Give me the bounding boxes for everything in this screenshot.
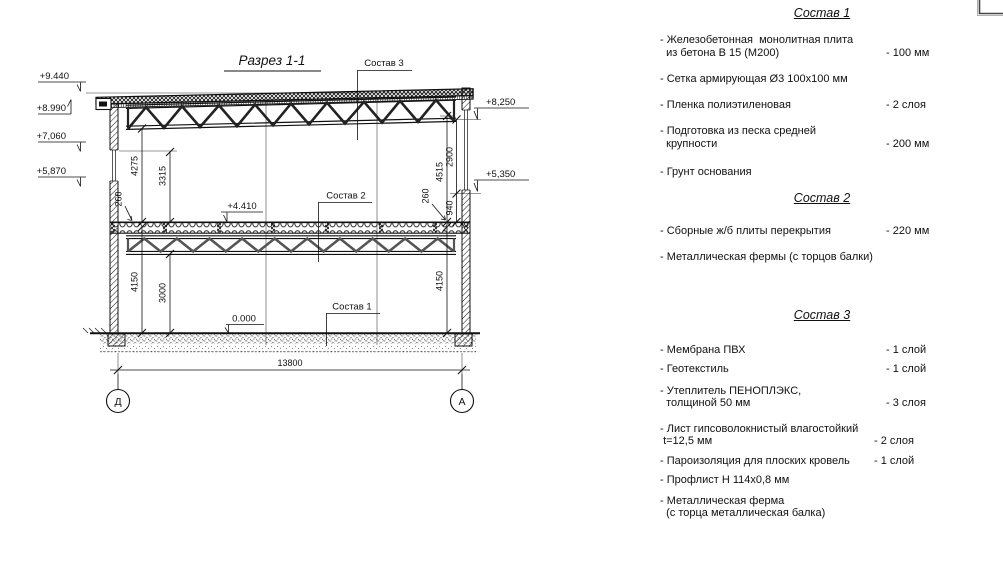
dim-940: 940 bbox=[445, 200, 455, 215]
item-name: - Утеплитель ПЕНОПЛЭКС, толщиной 50 мм bbox=[660, 385, 882, 410]
item-name: - Металлическая ферма (с торца металличе… bbox=[660, 495, 882, 520]
callout-sostav1-label: Состав 1 bbox=[332, 302, 371, 313]
drawing-title: Разрез 1-1 bbox=[224, 53, 321, 71]
down-arrow-icon bbox=[77, 83, 81, 92]
item-value: - 3 слоя bbox=[886, 397, 926, 410]
list-item: - Мембрана ПВХ - 1 слой bbox=[660, 344, 970, 357]
floor-truss-diagonals bbox=[128, 239, 454, 252]
up-arrow-icon bbox=[68, 100, 72, 115]
item-value: - 1 слой bbox=[886, 363, 926, 376]
item-name: - Сетка армирующая Ø3 100х100 мм bbox=[660, 73, 882, 86]
section-title-sostav2: Состав 2 bbox=[660, 191, 970, 205]
roof-slab bbox=[96, 89, 473, 110]
sand-bed-band bbox=[100, 344, 476, 352]
down-arrow-icon bbox=[77, 143, 81, 152]
elevation-mark-0000: 0.000 bbox=[225, 314, 264, 334]
list-item: - Сборные ж/б плиты перекрытия - 220 мм bbox=[660, 225, 970, 238]
right-wall bbox=[461, 88, 471, 333]
list-item: - Подготовка из песка средней крупности … bbox=[660, 125, 970, 150]
drawing-title-text: Разрез 1-1 bbox=[239, 53, 306, 68]
section-drawing: Разрез 1-1 bbox=[0, 0, 660, 584]
left-wall bbox=[109, 104, 119, 333]
list-item: - Лист гипсоволокнистый влагостойкий t=1… bbox=[660, 423, 970, 448]
list-item: - Пароизоляция для плоских кровель - 1 с… bbox=[660, 455, 970, 468]
elevation-7060-label: +7,060 bbox=[37, 131, 66, 142]
dim-4150-left: 4150 bbox=[130, 272, 140, 292]
item-name: - Пленка полиэтиленовая bbox=[660, 99, 882, 112]
dimension-left-3000: 3000 bbox=[158, 250, 175, 337]
foundation-block-right bbox=[455, 334, 472, 346]
item-value: - 200 мм bbox=[886, 138, 929, 151]
item-name: - Металлическая фермы (с торцов балки) bbox=[660, 251, 900, 264]
elevation-8990-label: +8.990 bbox=[37, 103, 66, 114]
axis-bubble-left: Д bbox=[107, 374, 130, 413]
elevation-8250-label: +8,250 bbox=[486, 97, 515, 108]
dim-4150-right: 4150 bbox=[435, 271, 445, 291]
elevation-0000-label: 0.000 bbox=[232, 314, 256, 325]
list-item: - Грунт основания bbox=[660, 166, 970, 179]
elevation-5350-label: +5,350 bbox=[486, 169, 515, 180]
item-value: - 1 слой bbox=[874, 455, 914, 468]
list-item: - Сетка армирующая Ø3 100х100 мм bbox=[660, 73, 970, 86]
item-name: - Мембрана ПВХ bbox=[660, 344, 882, 357]
down-arrow-icon bbox=[474, 109, 478, 120]
page: { "drawing": { "title": "Разрез 1-1", "c… bbox=[0, 0, 1003, 584]
axis-letter-a: А bbox=[458, 396, 465, 408]
slab-concrete-band bbox=[100, 334, 476, 344]
floor-truss bbox=[126, 236, 456, 255]
roof-truss-bottom-chord bbox=[126, 118, 456, 129]
list-item: - Металлическая фермы (с торцов балки) bbox=[660, 251, 970, 264]
intermediate-floor bbox=[110, 222, 470, 233]
dim-3000: 3000 bbox=[158, 283, 168, 303]
item-value: - 220 мм bbox=[886, 225, 929, 238]
item-name: - Лист гипсоволокнистый влагостойкий t=1… bbox=[660, 423, 872, 448]
item-value: - 2 слоя bbox=[886, 99, 926, 112]
down-arrow-icon bbox=[224, 213, 228, 223]
callout-sostav3-label: Состав 3 bbox=[364, 58, 403, 69]
elevation-5870-label: +5,870 bbox=[37, 166, 66, 177]
right-window-opening bbox=[461, 110, 471, 190]
dimension-span-13800: 13800 bbox=[110, 358, 470, 374]
elevation-mark-5870: +5,870 bbox=[37, 166, 86, 187]
list-item: - Профлист Н 114х0,8 мм bbox=[660, 474, 970, 487]
dim-4515: 4515 bbox=[435, 162, 445, 182]
list-item: - Геотекстиль - 1 слой bbox=[660, 363, 970, 376]
dim-260-right: 260 bbox=[421, 188, 431, 203]
item-value: - 1 слой bbox=[886, 344, 926, 357]
list-item: - Утеплитель ПЕНОПЛЭКС, толщиной 50 мм -… bbox=[660, 385, 970, 410]
list-item: - Железобетонная монолитная плита из бет… bbox=[660, 34, 970, 59]
section-title-sostav3: Состав 3 bbox=[660, 308, 970, 322]
axis-letter-d: Д bbox=[114, 396, 121, 408]
elevation-4410-label: +4.410 bbox=[227, 201, 256, 212]
elevation-9440-label: +9.440 bbox=[40, 71, 69, 82]
dim-260-left: 260 bbox=[114, 191, 124, 206]
elevation-mark-5350: +5,350 bbox=[474, 169, 529, 192]
list-item: - Пленка полиэтиленовая - 2 слоя bbox=[660, 99, 970, 112]
dim-13800: 13800 bbox=[277, 358, 302, 368]
ground-slab bbox=[83, 328, 480, 352]
section-title-sostav1: Состав 1 bbox=[660, 6, 970, 20]
down-arrow-icon bbox=[474, 181, 478, 192]
dimension-right-260: 260 bbox=[421, 188, 446, 220]
item-name: - Сборные ж/б плиты перекрытия bbox=[660, 225, 882, 238]
elevation-mark-8250: +8,250 bbox=[474, 97, 529, 120]
elevation-mark-8990: +8.990 bbox=[37, 100, 71, 115]
down-arrow-icon bbox=[77, 178, 81, 187]
dim-4275: 4275 bbox=[130, 156, 140, 176]
dimension-left-4275: 4275 bbox=[130, 125, 147, 227]
dim-2900: 2900 bbox=[445, 147, 455, 167]
elevation-mark-9440: +9.440 bbox=[38, 71, 86, 92]
down-arrow-icon bbox=[225, 325, 229, 333]
drawing-frame-corner bbox=[960, 0, 1003, 20]
item-name: - Профлист Н 114х0,8 мм bbox=[660, 474, 882, 487]
item-name: - Грунт основания bbox=[660, 166, 882, 179]
item-name: - Железобетонная монолитная плита из бет… bbox=[660, 34, 882, 59]
item-value: - 100 мм bbox=[886, 47, 929, 60]
item-name: - Пароизоляция для плоских кровель bbox=[660, 455, 868, 468]
item-name: - Подготовка из песка средней крупности bbox=[660, 125, 882, 150]
composition-panel: Состав 1 - Железобетонная монолитная пли… bbox=[660, 0, 970, 520]
axis-bubble-right: А bbox=[451, 374, 474, 413]
elevation-mark-7060: +7,060 bbox=[37, 131, 86, 152]
dim-3315: 3315 bbox=[158, 166, 168, 186]
dimension-left-3315: 3315 bbox=[158, 148, 175, 226]
item-name: - Геотекстиль bbox=[660, 363, 882, 376]
list-item: - Металлическая ферма (с торца металличе… bbox=[660, 495, 970, 520]
item-value: - 2 слоя bbox=[874, 435, 914, 448]
elevation-mark-4410: +4.410 bbox=[221, 201, 263, 222]
left-window-opening bbox=[109, 150, 119, 181]
foundation-block-left bbox=[108, 334, 125, 346]
callout-sostav2-label: Состав 2 bbox=[326, 191, 365, 202]
ground-hatch-ticks bbox=[83, 328, 106, 333]
